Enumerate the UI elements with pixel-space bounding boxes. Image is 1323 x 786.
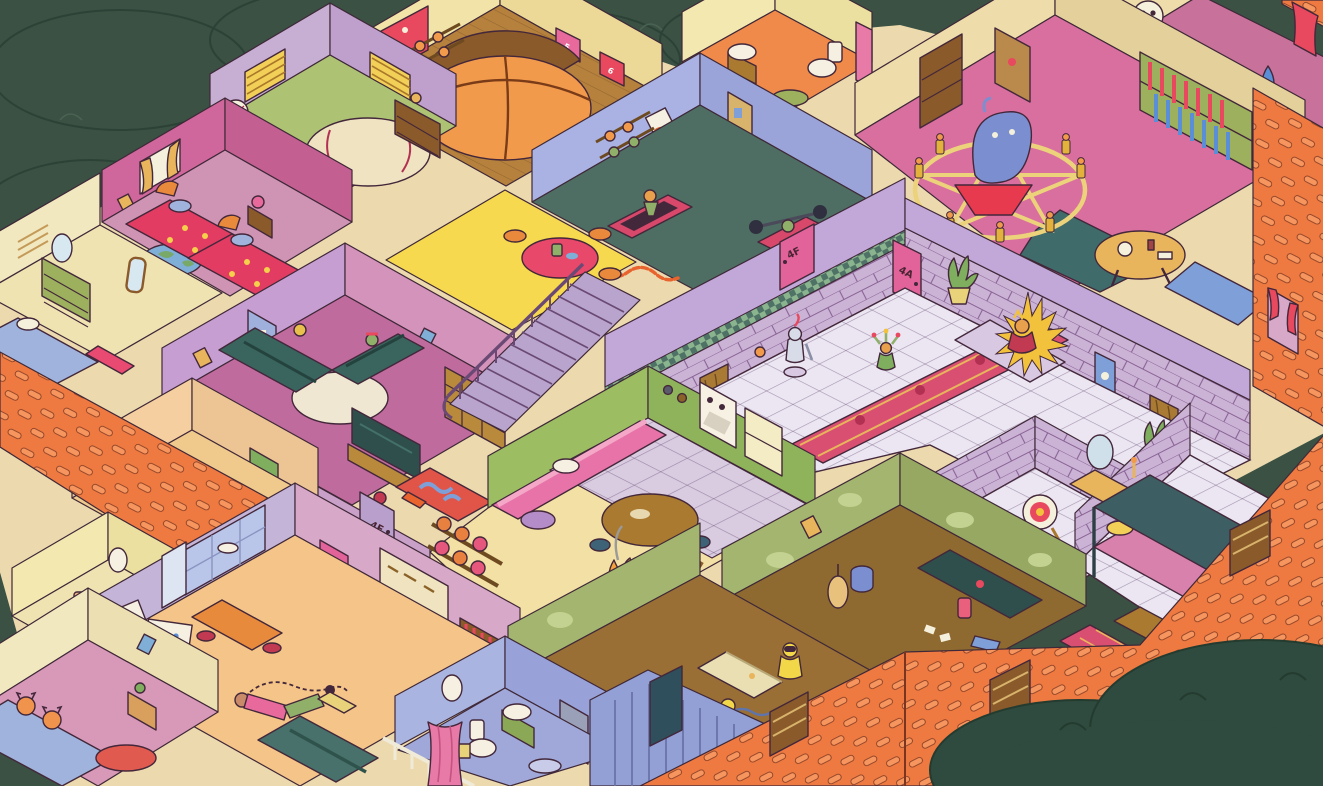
cat-1 <box>17 697 35 715</box>
standing-mirror <box>126 257 147 293</box>
king <box>1015 319 1029 333</box>
table-skull <box>1118 242 1132 256</box>
goo-spill <box>521 511 555 529</box>
trophy <box>411 93 421 103</box>
kitchen-sink-2 <box>218 543 238 553</box>
scene-canvas: 5 6 <box>0 0 1323 786</box>
vanity-mirror <box>1087 435 1113 469</box>
bathroom-mirror <box>442 675 462 701</box>
weight-lifter <box>782 220 794 232</box>
round-table-red <box>522 238 598 278</box>
blue-barrel <box>851 566 873 592</box>
dresser-mirror <box>52 234 72 262</box>
lamp <box>252 196 264 208</box>
isometric-apartment-scene: 5 6 <box>0 0 1323 786</box>
couch-kid <box>366 334 378 346</box>
bath-rug <box>529 759 561 773</box>
red-rug <box>96 745 156 771</box>
jumping-kid <box>294 324 306 336</box>
bathroom-mirror <box>109 548 127 572</box>
pink-curtain <box>428 722 462 786</box>
treadmill-runner <box>644 190 656 202</box>
cat-2 <box>43 711 61 729</box>
kitchen-sink <box>553 459 579 473</box>
yellow-stool <box>458 744 470 758</box>
wall-torch <box>755 347 765 357</box>
pink-canister <box>958 598 971 618</box>
